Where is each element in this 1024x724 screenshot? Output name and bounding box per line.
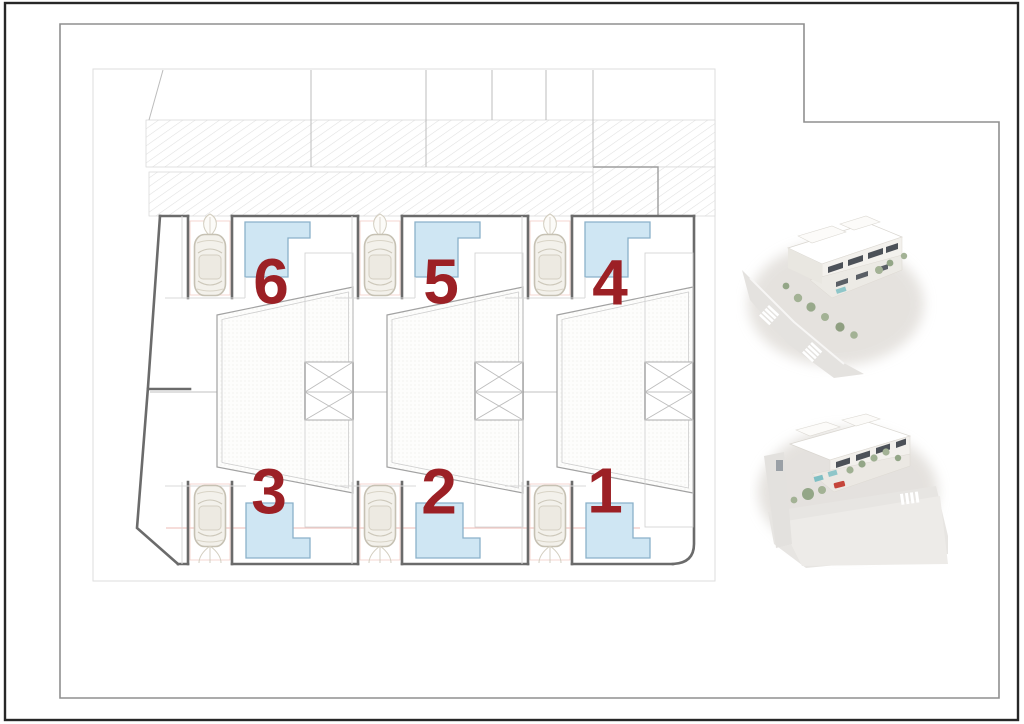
plot-number-4: 4 <box>592 251 628 315</box>
plot-number-1: 1 <box>587 459 623 523</box>
van <box>776 460 783 471</box>
plot-number-6: 6 <box>253 250 289 314</box>
aerial-3d-render-rear-view <box>750 396 950 571</box>
hatched-road <box>146 120 715 216</box>
aerial-3d-render-street-corner <box>736 206 946 378</box>
plot-number-2: 2 <box>421 460 457 524</box>
plot-number-5: 5 <box>423 250 459 314</box>
plot-number-3: 3 <box>251 460 287 524</box>
plan-sheet: 6 5 4 3 2 1 <box>0 0 1024 724</box>
